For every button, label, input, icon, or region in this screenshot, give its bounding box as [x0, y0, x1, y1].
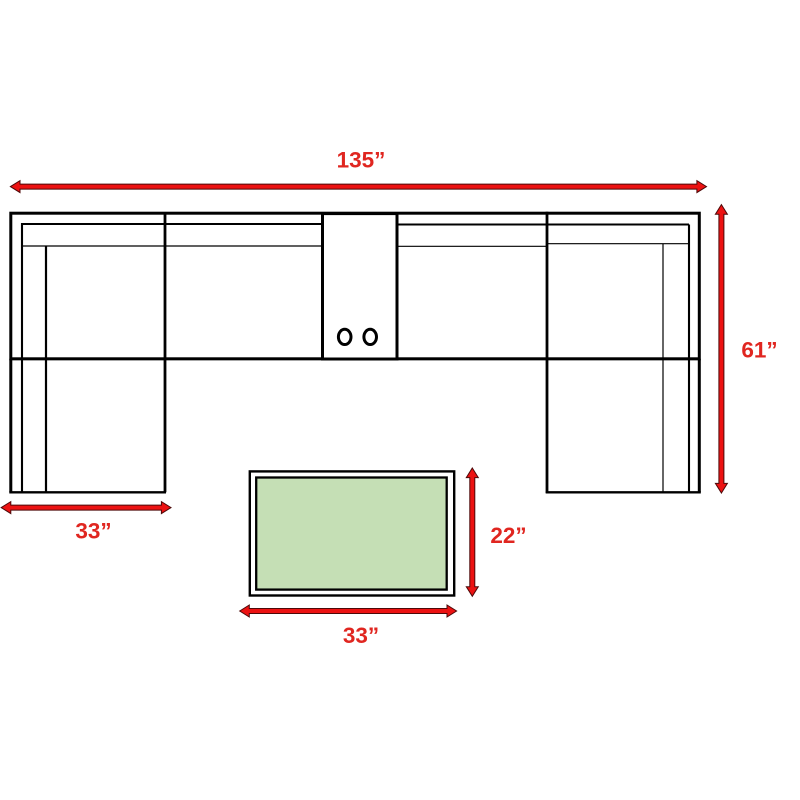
svg-text:33”: 33”	[343, 623, 379, 648]
svg-text:22”: 22”	[490, 523, 526, 548]
svg-text:135”: 135”	[337, 148, 386, 173]
svg-text:61”: 61”	[741, 338, 777, 363]
svg-text:33”: 33”	[75, 519, 111, 544]
